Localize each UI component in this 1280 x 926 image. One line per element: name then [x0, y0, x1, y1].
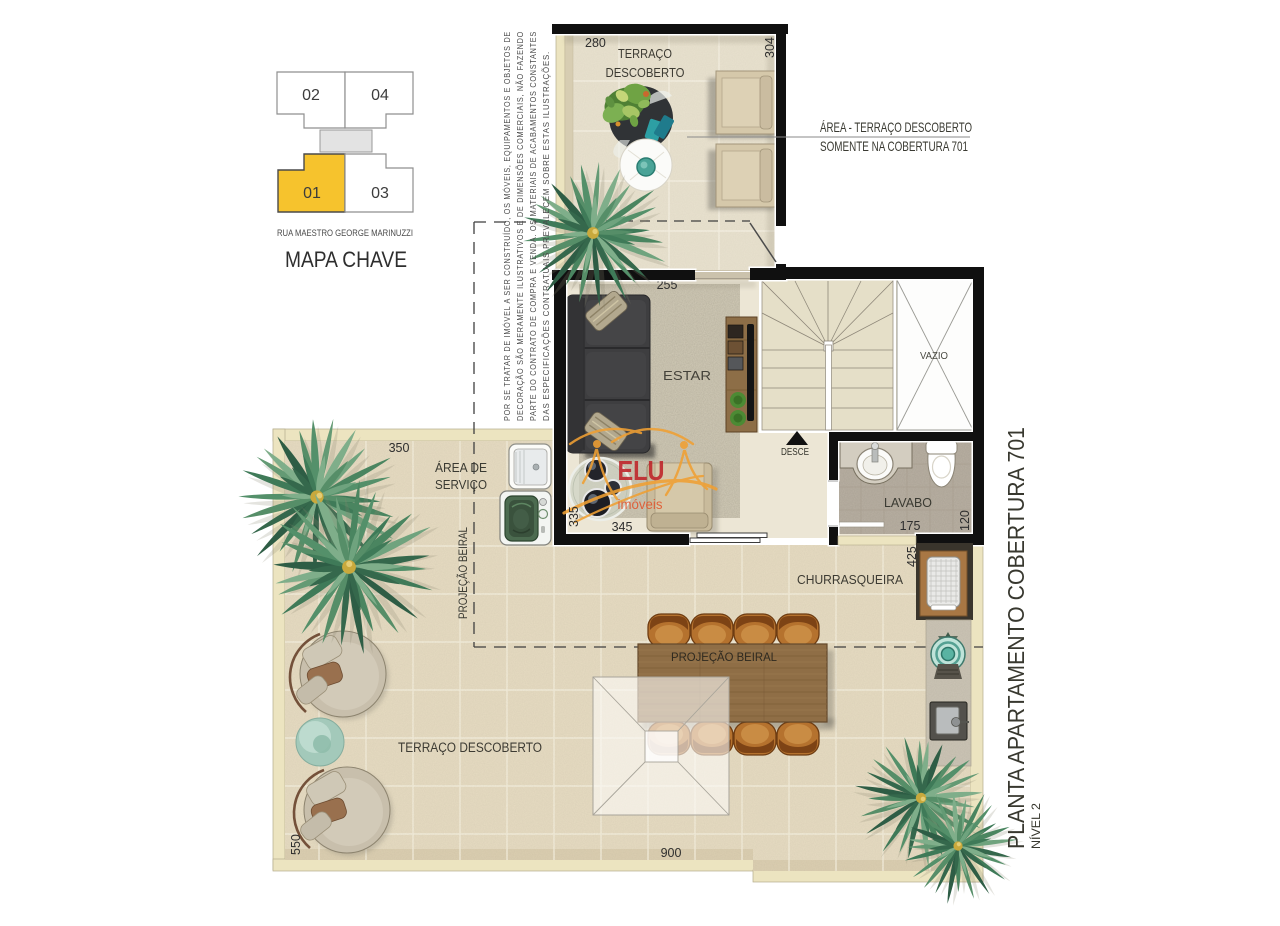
svg-text:DAS ESPECIFICAÇÕES CONTRATUAIS: DAS ESPECIFICAÇÕES CONTRATUAIS PREVALECE… — [542, 51, 551, 421]
svg-text:TERRAÇO DESCOBERTO: TERRAÇO DESCOBERTO — [398, 740, 542, 755]
svg-text:PLANTA APARTAMENTO COBERTURA 7: PLANTA APARTAMENTO COBERTURA 701 — [1003, 427, 1029, 849]
svg-text:335: 335 — [567, 506, 581, 527]
svg-text:SOMENTE NA COBERTURA 701: SOMENTE NA COBERTURA 701 — [820, 138, 968, 154]
svg-text:DECORAÇÃO SÃO MERAMENTE ILUSTR: DECORAÇÃO SÃO MERAMENTE ILUSTRATIVOS E D… — [516, 31, 525, 421]
svg-text:PROJEÇÃO BEIRAL: PROJEÇÃO BEIRAL — [671, 650, 777, 664]
svg-text:DESCE: DESCE — [781, 446, 809, 458]
svg-text:02: 02 — [302, 87, 320, 104]
svg-text:RUA MAESTRO GEORGE MARINUZZI: RUA MAESTRO GEORGE MARINUZZI — [277, 228, 413, 239]
svg-text:345: 345 — [612, 520, 633, 534]
svg-text:04: 04 — [371, 87, 389, 104]
svg-text:PARTE DO CONTRATO DE COMPRA E: PARTE DO CONTRATO DE COMPRA E VENDA. OS … — [529, 31, 538, 421]
svg-text:PROJEÇÃO BEIRAL: PROJEÇÃO BEIRAL — [457, 526, 470, 619]
svg-text:ESTAR: ESTAR — [663, 368, 711, 383]
svg-text:120: 120 — [958, 510, 972, 531]
svg-text:TERRAÇO: TERRAÇO — [618, 46, 672, 61]
svg-text:SERVIÇO: SERVIÇO — [435, 477, 487, 492]
svg-text:DESCOBERTO: DESCOBERTO — [606, 65, 685, 80]
svg-text:01: 01 — [303, 185, 321, 202]
svg-text:VAZIO: VAZIO — [920, 351, 948, 362]
svg-text:03: 03 — [371, 185, 389, 202]
svg-text:imóveis: imóveis — [618, 497, 663, 512]
svg-text:425: 425 — [905, 546, 919, 567]
svg-text:ÁREA - TERRAÇO DESCOBERTO: ÁREA - TERRAÇO DESCOBERTO — [820, 119, 972, 135]
svg-text:550: 550 — [289, 834, 303, 855]
svg-text:CHURRASQUEIRA: CHURRASQUEIRA — [797, 572, 903, 587]
svg-text:NÍVEL 2: NÍVEL 2 — [1030, 803, 1043, 849]
svg-text:280: 280 — [585, 36, 606, 50]
svg-text:ÁREA DE: ÁREA DE — [435, 460, 487, 475]
svg-text:350: 350 — [389, 441, 410, 455]
svg-text:ELU: ELU — [618, 455, 665, 486]
svg-text:LAVABO: LAVABO — [884, 495, 932, 510]
svg-text:MAPA CHAVE: MAPA CHAVE — [285, 247, 407, 272]
svg-text:175: 175 — [900, 519, 921, 533]
svg-text:POR SE TRATAR DE IMÓVEL A SER: POR SE TRATAR DE IMÓVEL A SER CONSTRUÍDO… — [503, 31, 512, 421]
svg-text:900: 900 — [661, 846, 682, 860]
